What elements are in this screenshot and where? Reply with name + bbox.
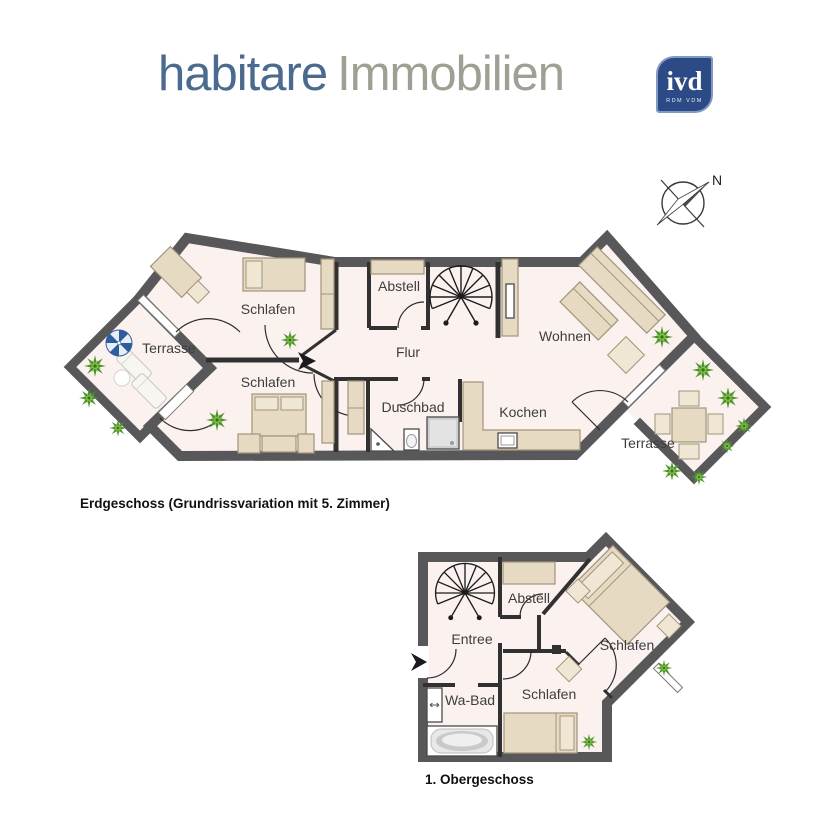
og-label-wabad: Wa-Bad (445, 692, 495, 708)
abstell-shelf (371, 260, 424, 274)
room-label-abstell: Abstell (378, 278, 420, 294)
room-label-flur: Flur (396, 344, 420, 360)
og-label-abstell: Abstell (508, 590, 550, 606)
room-label-kochen: Kochen (499, 404, 546, 420)
room-label-wohnen: Wohnen (539, 328, 591, 344)
parasol-icon (106, 330, 132, 356)
room-label-schlafen-bottom: Schlafen (241, 374, 295, 390)
og-label-schlafen-bottom: Schlafen (522, 686, 576, 702)
flyer-page: habitareImmobilien ivd RDM VDM Erdgescho… (0, 0, 840, 840)
og-abstell-shelf (503, 562, 555, 584)
room-label-schlafen-top: Schlafen (241, 301, 295, 317)
wardrobe-bottom (322, 381, 334, 443)
og-label-entree: Entree (451, 631, 492, 647)
floorplan-canvas: N (0, 0, 840, 840)
og-label-schlafen-right: Schlafen (600, 637, 654, 653)
compass-north-label: N (712, 172, 722, 188)
ground-floor-plan: Schlafen Schlafen Terrasse Abstell Flur … (70, 237, 765, 485)
upper-floor-plan: Abstell Entree Schlafen Schlafen Wa-Bad (411, 539, 688, 757)
room-label-terrasse-left: Terrasse (142, 340, 196, 356)
compass-icon: N (657, 172, 722, 227)
room-label-terrasse-right: Terrasse (621, 435, 675, 451)
room-label-duschbad: Duschbad (381, 399, 444, 415)
terrace-table (672, 408, 706, 442)
